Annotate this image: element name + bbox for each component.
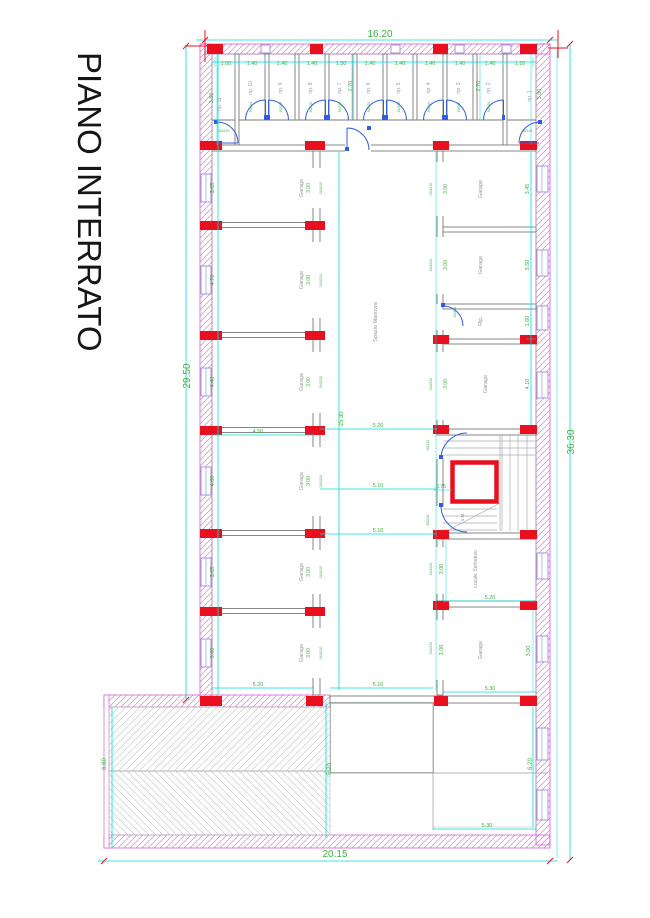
door-size-label: 80/210 — [249, 102, 253, 113]
room-label-storage: rip. 8 — [308, 82, 314, 93]
door-size-label: 80/210 — [338, 102, 342, 113]
dim-garage-width: 5.20 — [253, 682, 264, 688]
dim-top-width: 1.10 — [515, 61, 526, 67]
elevator-shaft — [453, 463, 497, 502]
dim-depth: 2.70 — [476, 81, 482, 92]
dim-top-width: 1.40 — [247, 61, 258, 67]
room-label-stair: S.M. — [460, 512, 465, 521]
room-label-storage: rip. 2 — [486, 82, 492, 93]
dim-left-total: 29.50 — [182, 363, 193, 388]
dim-depth: 3.80 — [209, 93, 215, 104]
staircase — [443, 435, 536, 533]
dim-top-total: 16.20 — [367, 29, 392, 40]
dim-door: 3.00 — [306, 567, 312, 577]
door-size-label: 80/210 — [427, 102, 431, 113]
room-label-garage: Garage — [299, 179, 305, 197]
dim-door: 3.00 — [306, 183, 312, 193]
dim-left-row: 4.60 — [210, 476, 216, 487]
room-label-tank: Locale Serbatoio — [473, 550, 479, 588]
door-size-label: 240/210 — [429, 563, 433, 576]
room-label-garage: Garage — [478, 641, 484, 659]
dim-top-width: 1.40 — [485, 61, 496, 67]
dim-right-row: 4.10 — [525, 379, 531, 390]
room-label-garage: Garage — [299, 644, 305, 662]
dim-courtyard-width: 5.30 — [482, 823, 493, 829]
dim-elevator-gap: 0.75 — [436, 484, 446, 490]
dim-top-width: 1.40 — [365, 61, 376, 67]
dim-top-width: 1.40 — [455, 61, 466, 67]
door-size-label: 240/210 — [429, 378, 433, 391]
door-size-label: 80/210 — [367, 102, 371, 113]
room-label-storage: rip. 5 — [396, 82, 402, 93]
dim-right-total: 36.30 — [566, 429, 577, 454]
dim-maneuver-width: 5.10 — [373, 528, 384, 534]
ramp — [109, 707, 330, 835]
dim-ramp-left: 6.80 — [102, 758, 108, 770]
dim-depth: 3.80 — [537, 89, 543, 100]
room-label-storage: rip. 9 — [278, 82, 284, 93]
dim-left-row: 3.80 — [210, 648, 216, 659]
dim-tank-height: 3.00 — [439, 564, 445, 575]
dim-door: 3.00 — [306, 476, 312, 486]
dim-door: 3.00 — [443, 260, 449, 270]
dim-top-width: 1.00 — [221, 61, 232, 67]
dim-door: 3.00 — [443, 379, 449, 389]
dim-top-width: 1.30 — [336, 61, 347, 67]
door-size-label: 80/210 — [453, 307, 457, 318]
dim-left-row: 4.70 — [210, 275, 216, 286]
dim-garage-width: 4.50 — [253, 429, 264, 435]
room-label-garage: Garage — [478, 256, 484, 274]
room-label-storage: rip. 10 — [248, 81, 254, 95]
dim-right-row: 3.45 — [525, 184, 531, 195]
door-size-label: 240/210 — [319, 647, 323, 660]
dim-top-width: 1.40 — [425, 61, 436, 67]
dim-right-row: 1.60 — [525, 316, 531, 327]
dim-center-height: 25.30 — [339, 411, 345, 427]
door-size-label: 80/210 — [397, 102, 401, 113]
dim-door: 3.00 — [306, 275, 312, 285]
room-label-storage-short: Rip. — [478, 316, 484, 326]
dim-courtyard-height: 6.20 — [528, 758, 534, 770]
drawing-title: PIANO INTERRATO — [71, 52, 108, 351]
door-size-label: 240/210 — [429, 183, 433, 196]
room-label-maneuver: Spazio Manovra — [373, 301, 379, 342]
floor-plan-canvas: PIANO INTERRATO 16.20 20.15 29.50 36.30 … — [0, 0, 650, 918]
door-size-label: 240/210 — [319, 376, 323, 389]
dim-left-row: 4.40 — [210, 377, 216, 388]
dim-depth: 2.70 — [348, 81, 354, 92]
door-size-label: 240/210 — [319, 182, 323, 195]
room-label-garage: Garage — [299, 271, 305, 289]
room-label-garage: Garage — [299, 563, 305, 581]
dim-ramp-right: 6.20 — [327, 763, 333, 775]
dim-right-row: 3.50 — [525, 260, 531, 271]
dim-maneuver-width: 5.10 — [373, 483, 384, 489]
door-size-label: 240/210 — [319, 274, 323, 287]
door-size-label: 240/210 — [429, 642, 433, 655]
dim-maneuver-width: 5.20 — [373, 423, 384, 429]
room-label-storage: rip. 7 — [337, 82, 343, 93]
door-size-label: 240/210 — [429, 259, 433, 272]
dim-bottom-total: 20.15 — [322, 849, 347, 860]
room-label-garage: Garage — [299, 472, 305, 490]
dim-top-width: 1.40 — [395, 61, 406, 67]
door-size-label: 80/210 — [219, 129, 230, 133]
dim-top-width: 1.40 — [307, 61, 318, 67]
room-label-garage: Garage — [478, 180, 484, 198]
dim-left-row: 3.65 — [210, 567, 216, 578]
door-size-label: 80/210 — [279, 102, 283, 113]
room-label-storage: rip. 6 — [366, 82, 372, 93]
door-size-label: 80/210 — [426, 440, 430, 451]
door-size-label: 80/210 — [457, 102, 461, 113]
dim-tank-width: 5.20 — [485, 595, 496, 601]
door-size-label: 240/210 — [319, 475, 323, 488]
room-label-storage: rip. 11 — [217, 97, 223, 111]
dim-top-width: 1.40 — [277, 61, 288, 67]
room-label-garage: Garage — [299, 373, 305, 391]
room-label-storage: rip. 1 — [527, 90, 533, 101]
door-size-label: 80/210 — [522, 129, 533, 133]
dim-door: 3.00 — [443, 184, 449, 194]
dim-garage-br-width: 5.30 — [485, 686, 496, 692]
room-label-storage: rip. 3 — [456, 82, 462, 93]
door-size-label: 80/210 — [426, 515, 430, 526]
door-size-label: 80/210 — [487, 102, 491, 113]
dim-garage-br-height: 3.00 — [439, 645, 445, 656]
door-size-label: 80/210 — [309, 102, 313, 113]
dim-left-row: 3.65 — [210, 183, 216, 194]
door-size-label: 240/210 — [319, 566, 323, 579]
dim-maneuver-width: 5.10 — [373, 682, 384, 688]
dim-door: 3.00 — [306, 648, 312, 658]
room-label-storage: rip. 4 — [426, 82, 432, 93]
floor-plan-drawing: PIANO INTERRATO 16.20 20.15 29.50 36.30 … — [0, 0, 650, 918]
dim-garage-br-height2: 3.00 — [526, 646, 532, 657]
room-label-garage: Garage — [483, 375, 489, 393]
dim-door: 3.00 — [306, 377, 312, 387]
courtyard — [330, 702, 548, 830]
